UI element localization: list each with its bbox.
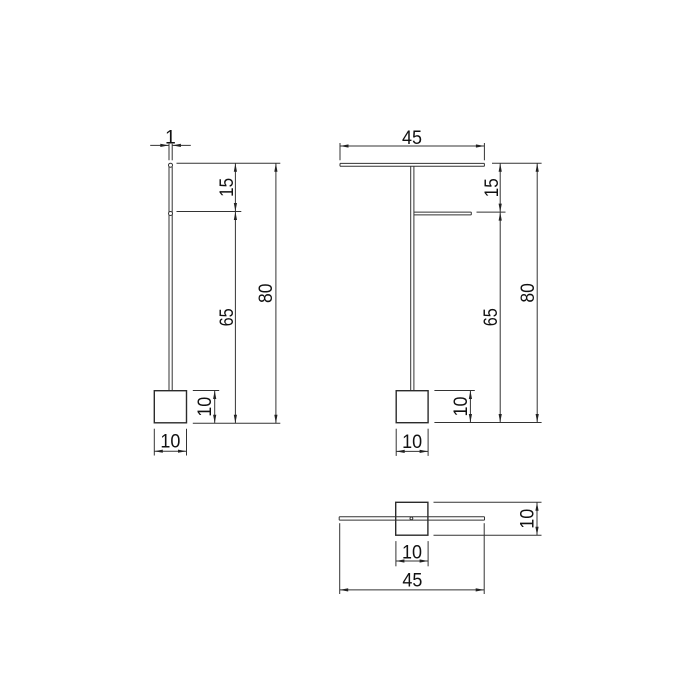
svg-text:15: 15: [481, 178, 503, 197]
svg-text:45: 45: [402, 570, 422, 592]
svg-text:65: 65: [480, 308, 502, 326]
svg-text:10: 10: [194, 397, 216, 417]
svg-text:10: 10: [402, 542, 422, 564]
svg-text:15: 15: [216, 178, 238, 197]
svg-text:1: 1: [165, 127, 176, 149]
svg-text:65: 65: [216, 308, 238, 326]
svg-text:10: 10: [402, 431, 422, 453]
svg-text:80: 80: [517, 283, 539, 303]
svg-text:80: 80: [255, 283, 277, 303]
svg-text:10: 10: [517, 509, 539, 529]
svg-text:10: 10: [160, 431, 180, 453]
svg-text:45: 45: [402, 127, 422, 149]
svg-text:10: 10: [450, 396, 472, 416]
